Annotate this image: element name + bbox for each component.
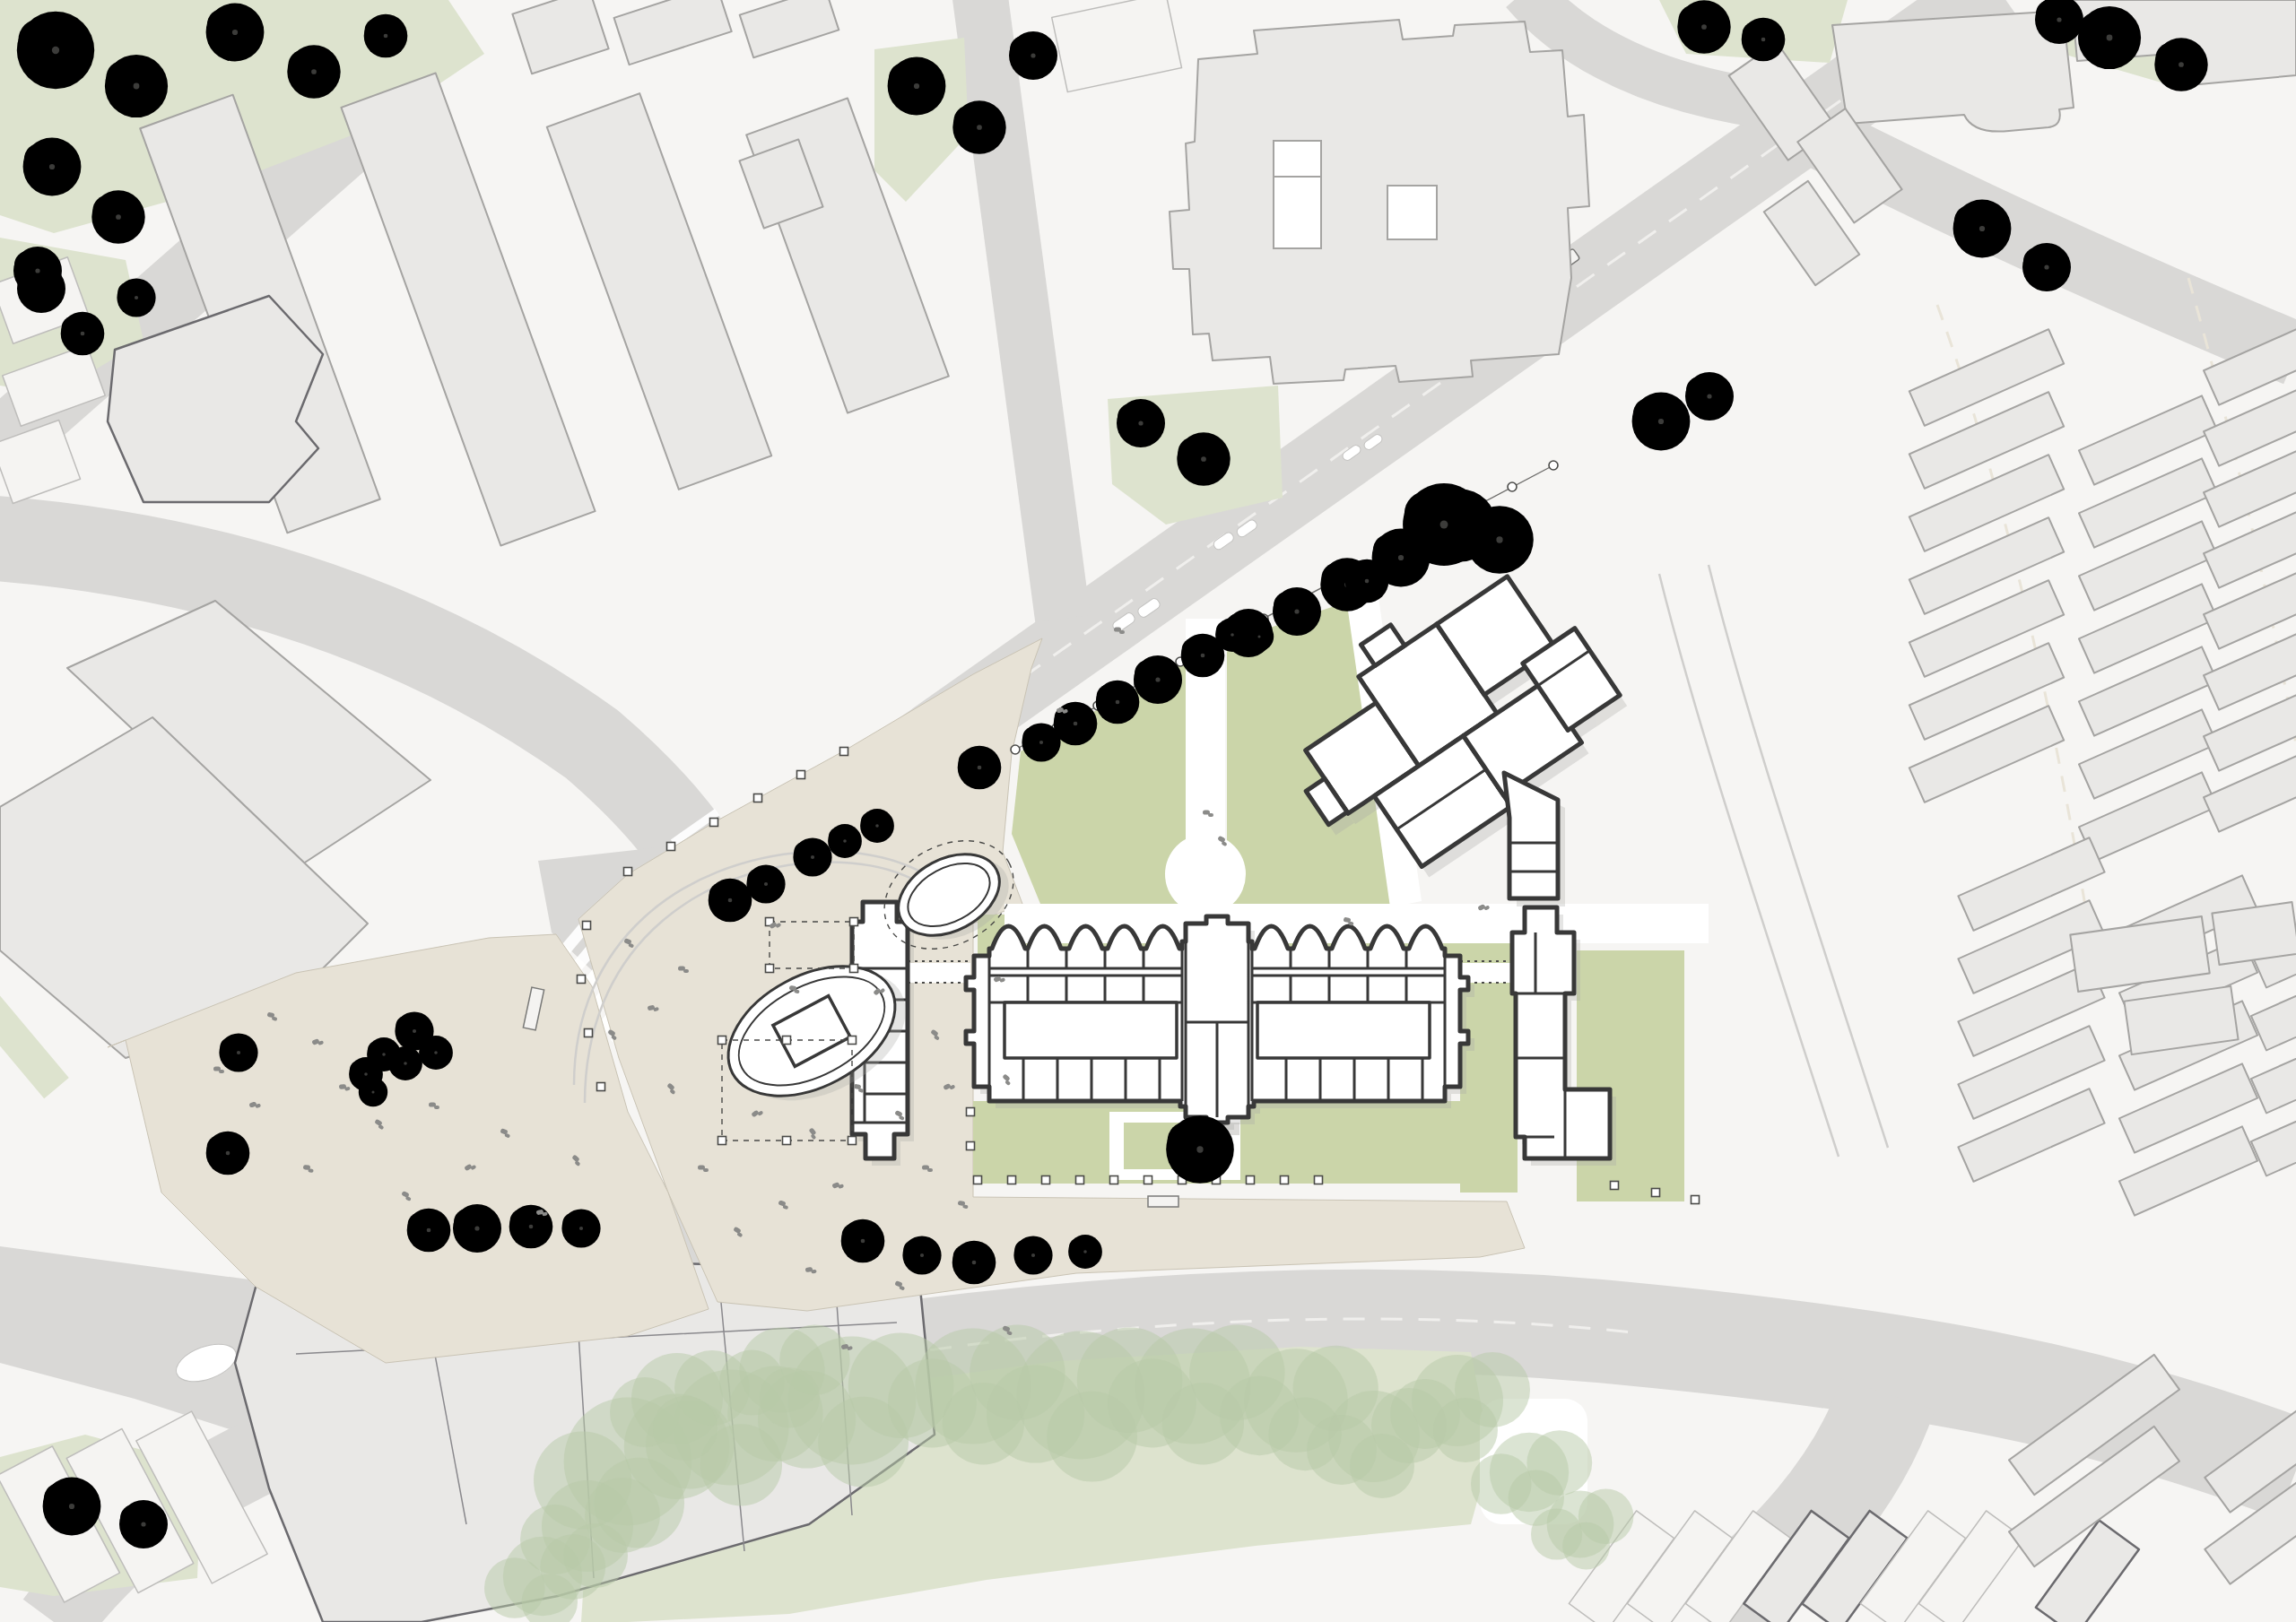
main-residential-building bbox=[966, 916, 1468, 1123]
courtyard-1 bbox=[1274, 141, 1321, 248]
site-plan-page bbox=[0, 0, 2296, 1622]
large-context-building-north bbox=[1170, 20, 1589, 384]
footbridge-west bbox=[908, 963, 970, 983]
sunken-garden-tree bbox=[1166, 1115, 1234, 1184]
site-plan-map bbox=[0, 0, 2296, 1622]
hall-east bbox=[1257, 1002, 1430, 1058]
bench-south bbox=[1148, 1196, 1178, 1207]
hall-west bbox=[1004, 1002, 1177, 1058]
courtyard-2 bbox=[1387, 186, 1437, 239]
park-path-bulge bbox=[1165, 834, 1246, 915]
